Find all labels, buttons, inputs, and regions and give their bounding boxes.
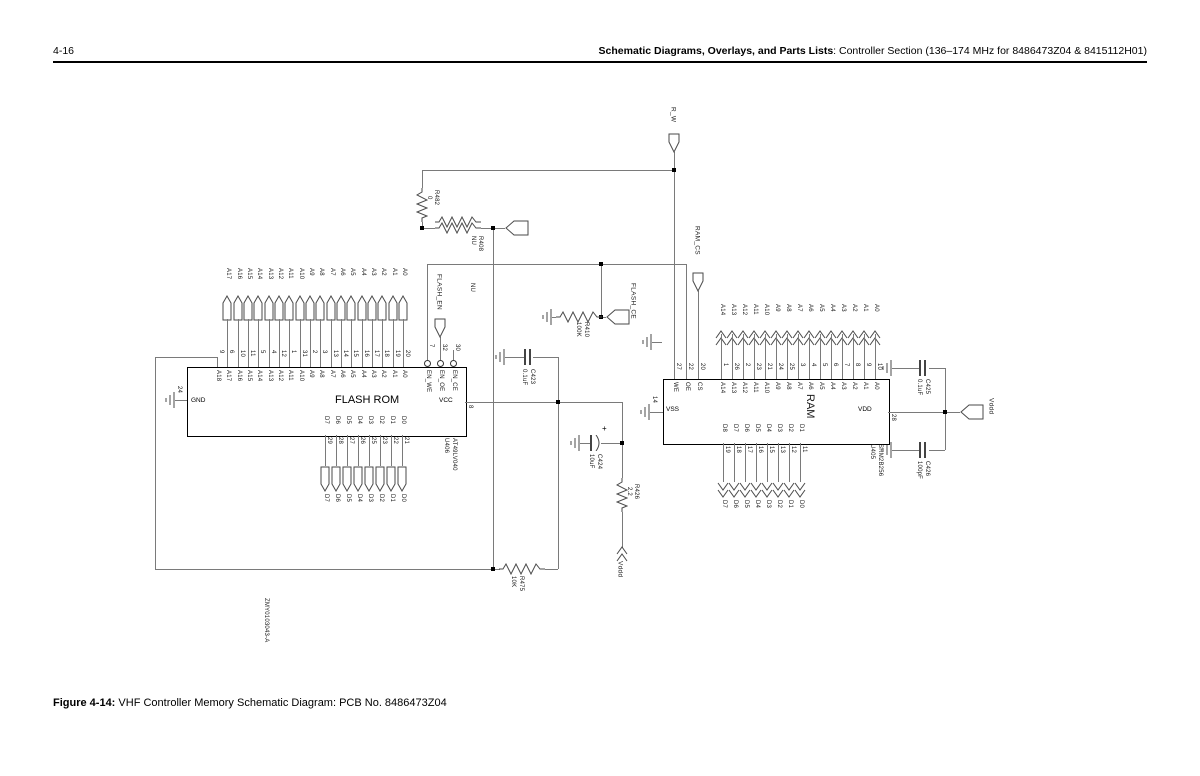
flash-pin-number: 2 (311, 350, 317, 354)
ram-pin-number: 8 (854, 363, 860, 367)
wire-v (391, 435, 392, 466)
ram-pin-number: 23 (755, 363, 761, 370)
ram-pin-number: 13 (779, 446, 785, 453)
ram-pin-label: A14 (719, 382, 725, 393)
connector-vddd (960, 404, 984, 420)
ram-pin-number: 2 (744, 363, 750, 367)
flash-address-arrow-label: A0 (401, 268, 407, 276)
ram-data-arrow-label: D7 (721, 500, 727, 508)
wire-v (238, 319, 239, 367)
flash-address-arrow-label: A5 (349, 268, 355, 276)
address-input-arrow (233, 295, 243, 321)
junction-dot (599, 262, 603, 266)
ram-pin-label: WE (672, 382, 678, 392)
data-bus-arrow (353, 466, 363, 492)
wire-h (929, 368, 945, 369)
junction-dot (420, 226, 424, 230)
capacitor-c426 (924, 442, 926, 458)
wire-h (580, 443, 590, 444)
wire-v (248, 319, 249, 367)
flash-pin-label: D1 (389, 416, 395, 424)
flash-pin-number: 14 (342, 350, 348, 357)
ram-data-arrow-label: D6 (732, 500, 738, 508)
wire-v (341, 319, 342, 367)
wire-v (351, 319, 352, 367)
manual-page: 4-16 Schematic Diagrams, Overlays, and P… (0, 0, 1200, 776)
ram-pin-label: A8 (785, 382, 791, 390)
wire-v (422, 170, 423, 188)
ram-address-arrow-label: A3 (840, 304, 846, 312)
address-input-arrow (305, 295, 315, 321)
wire-v (767, 443, 768, 482)
wire-v (798, 334, 799, 379)
capacitor-c426 (919, 442, 921, 458)
wire-v (622, 512, 623, 548)
ram-address-arrow-label: A7 (796, 304, 802, 312)
wire-v (723, 443, 724, 482)
ram-pin-label: A3 (840, 382, 846, 390)
ram-data-arrow-label: D1 (787, 500, 793, 508)
address-input-arrow (346, 295, 356, 321)
flash-pin-number: 1 (290, 350, 296, 354)
flash-data-arrow-label: D6 (334, 494, 340, 502)
address-input-arrow (264, 295, 274, 321)
flash-pin-number: 13 (332, 350, 338, 357)
ram-address-arrow-label: A10 (763, 304, 769, 315)
flash-pin-number: 29 (326, 437, 332, 444)
address-input-arrow (398, 295, 408, 321)
junction-dot (491, 226, 495, 230)
ram-pin-number: 20 (699, 363, 705, 370)
flash-pin-label: A0 (401, 370, 407, 378)
ground-symbol (640, 333, 652, 351)
flash-pin-number: 25 (370, 437, 376, 444)
wire-v (440, 337, 441, 360)
flash-data-arrow-label: D0 (400, 494, 406, 502)
schematic-canvas: A189A176A17A1610A16A1511A15A145A14A134A1… (0, 0, 1200, 776)
ram-pin-number: 6 (832, 363, 838, 367)
ram-pin-number: 26 (733, 363, 739, 370)
address-input-arrow (243, 295, 253, 321)
flash-pin-label: A3 (370, 370, 376, 378)
flash-pin-number: 5 (259, 350, 265, 354)
ground-c424 (568, 434, 580, 452)
ram-pin-label: A10 (763, 382, 769, 393)
wire-v (945, 368, 946, 450)
wire-v (320, 319, 321, 367)
ram-address-arrow-label: A9 (774, 304, 780, 312)
wire-h (533, 357, 558, 358)
flash-pin-label: A14 (256, 370, 262, 381)
ground-c423 (493, 348, 505, 366)
ram-pin-label: D8 (721, 424, 727, 432)
flash-address-arrow-label: A15 (246, 268, 252, 279)
flash-address-arrow-label: A14 (256, 268, 262, 279)
ram-data-arrow-label: D0 (798, 500, 804, 508)
flash-pin-label: A9 (308, 370, 314, 378)
ram-pin-label: A6 (807, 382, 813, 390)
flash-data-arrow-label: D7 (323, 494, 329, 502)
ram-data-arrow-label: D2 (776, 500, 782, 508)
wire-v (558, 357, 559, 569)
wire-v (853, 334, 854, 379)
wire-v (721, 334, 722, 379)
wire-v (698, 291, 699, 379)
ram-address-arrow-label: A14 (719, 304, 725, 315)
flash-address-arrow-label: A2 (380, 268, 386, 276)
flash-pin-label: A7 (329, 370, 335, 378)
wire-v (453, 350, 454, 360)
flash-address-arrow-label: A6 (339, 268, 345, 276)
connector-r-w (668, 133, 680, 153)
wire-h (155, 569, 500, 570)
ram-pin-number: 16 (757, 446, 763, 453)
address-input-arrow (253, 295, 263, 321)
junction-dot (620, 441, 624, 445)
wire-v (310, 319, 311, 367)
flash-pin-label: A2 (380, 370, 386, 378)
flash-ctrl-pin-number: 32 (441, 344, 447, 351)
flash-pin-number: 3 (321, 350, 327, 354)
flash-address-arrow-label: A10 (298, 268, 304, 279)
ram-pin-number: 24 (777, 363, 783, 370)
address-input-arrow (274, 295, 284, 321)
wire-v (300, 319, 301, 367)
flash-pin-label: A5 (349, 370, 355, 378)
wire-v (380, 435, 381, 466)
capacitor-c424-curved-plate (594, 435, 604, 451)
flash-pin-number: 21 (403, 437, 409, 444)
data-bus-arrow (386, 466, 396, 492)
junction-dot (491, 567, 495, 571)
ram-pin-number: 17 (746, 446, 752, 453)
wire-v (493, 228, 494, 569)
flash-pin-label: D6 (334, 416, 340, 424)
ram-data-arrow-label: D5 (743, 500, 749, 508)
junction-dot (556, 400, 560, 404)
wire-v (734, 443, 735, 482)
wire-v (864, 334, 865, 379)
flash-address-arrow-label: A4 (360, 268, 366, 276)
flash-pin-label: D7 (323, 416, 329, 424)
wire-v (787, 334, 788, 379)
flash-address-arrow-label: A8 (318, 268, 324, 276)
active-low-bubble (450, 360, 457, 367)
wire-v (382, 319, 383, 367)
ram-address-arrow-label: A13 (730, 304, 736, 315)
flash-pin-label: A16 (236, 370, 242, 381)
ram-address-arrow-label: A0 (873, 304, 879, 312)
flash-address-arrow-label: A12 (277, 268, 283, 279)
wire-v (820, 334, 821, 379)
ram-pin-label: A1 (862, 382, 868, 390)
flash-ctrl-pin-label: EN_CE (451, 370, 457, 391)
wire-v (369, 435, 370, 466)
flash-pin-number: 26 (359, 437, 365, 444)
data-bus-arrow (375, 466, 385, 492)
flash-pin-number: 4 (270, 350, 276, 354)
wire-v (289, 319, 290, 367)
wire-h (650, 412, 663, 413)
wire-v (743, 334, 744, 379)
ram-pin-number: 21 (766, 363, 772, 370)
wire-h (888, 412, 960, 413)
flash-pin-number: 17 (373, 350, 379, 357)
wire-v (347, 435, 348, 466)
wire-v (336, 435, 337, 466)
ram-pin-label: A7 (796, 382, 802, 390)
wire-v (778, 443, 779, 482)
ram-pin-label: CS (696, 382, 702, 391)
address-input-arrow (284, 295, 294, 321)
wire-v (875, 334, 876, 379)
flash-address-arrow-label: A7 (329, 268, 335, 276)
capacitor-c423 (524, 349, 526, 365)
wire-v (227, 319, 228, 367)
flash-address-arrow-label: A17 (225, 268, 231, 279)
ram-pin-label: A0 (873, 382, 879, 390)
wire-v (258, 319, 259, 367)
ram-pin-label: D3 (776, 424, 782, 432)
ground-r410 (540, 308, 552, 326)
flash-pin-number: 15 (352, 350, 358, 357)
capacitor-c425 (919, 360, 921, 376)
active-low-bubble (424, 360, 431, 367)
flash-pin-label: A18 (215, 370, 221, 381)
wire-v (358, 435, 359, 466)
resistor-r482 (416, 188, 428, 222)
wire-v (331, 319, 332, 367)
ram-pin-label: D5 (754, 424, 760, 432)
flash-pin-label: A1 (391, 370, 397, 378)
flash-data-arrow-label: D2 (378, 494, 384, 502)
ram-pin-label: OE (684, 382, 690, 391)
flash-pin-label: D3 (367, 416, 373, 424)
wire-v (622, 443, 623, 478)
ram-pin-label: D4 (765, 424, 771, 432)
flash-pin-label: A6 (339, 370, 345, 378)
wire-h (929, 450, 945, 451)
wire-h (175, 400, 187, 401)
flash-pin-label: A13 (267, 370, 273, 381)
flash-pin-number: 16 (363, 350, 369, 357)
wire-v (765, 334, 766, 379)
ram-pin-label: D1 (798, 424, 804, 432)
ram-address-arrow-label: A4 (829, 304, 835, 312)
ram-pin-label: A9 (774, 382, 780, 390)
ram-data-arrow-label: D4 (754, 500, 760, 508)
connector-flash-ce (606, 309, 630, 325)
ram-pin-number: 9 (865, 363, 871, 367)
ram-pin-number: 19 (724, 446, 730, 453)
address-input-arrow (315, 295, 325, 321)
flash-data-arrow-label: D5 (345, 494, 351, 502)
flash-pin-label: A17 (225, 370, 231, 381)
wire-v (686, 264, 687, 379)
flash-ctrl-pin-label: EN_OE (438, 370, 444, 391)
wire-h (427, 264, 686, 265)
flash-pin-number: 11 (249, 350, 255, 357)
wire-v (809, 334, 810, 379)
address-input-arrow (222, 295, 232, 321)
ram-address-arrow-label: A5 (818, 304, 824, 312)
flash-data-arrow-label: D1 (389, 494, 395, 502)
address-input-arrow (388, 295, 398, 321)
wire-v (754, 334, 755, 379)
flash-pin-number: 20 (404, 350, 410, 357)
resistor-r410 (556, 311, 602, 323)
flash-pin-number: 27 (348, 437, 354, 444)
flash-pin-number: 31 (301, 350, 307, 357)
capacitor-c425 (924, 360, 926, 376)
address-input-arrow (367, 295, 377, 321)
flash-pin-label: A15 (246, 370, 252, 381)
ram-pin-number: 7 (843, 363, 849, 367)
flash-pin-label: A10 (298, 370, 304, 381)
ram-pin-number: 18 (735, 446, 741, 453)
ram-data-arrow-label: D3 (765, 500, 771, 508)
ram-pin-number: 12 (790, 446, 796, 453)
ram-pin-number: 22 (687, 363, 693, 370)
flash-pin-label: A11 (287, 370, 293, 381)
flash-pin-number: 6 (228, 350, 234, 354)
connector-ram-cs (692, 272, 704, 292)
ram-pin-number: 27 (675, 363, 681, 370)
resistor-r475 (499, 563, 545, 575)
address-input-arrow (377, 295, 387, 321)
wire-v (674, 170, 675, 379)
ram-pin-label: A13 (730, 382, 736, 393)
data-bus-arrow (364, 466, 374, 492)
flash-pin-label: A12 (277, 370, 283, 381)
flash-address-arrow-label: A16 (236, 268, 242, 279)
data-bus-arrow (342, 466, 352, 492)
off-page-connector (505, 220, 529, 236)
ram-pin-number: 1 (722, 363, 728, 367)
address-input-arrow (326, 295, 336, 321)
wire-h (465, 402, 622, 403)
ram-pin-label: A4 (829, 382, 835, 390)
wire-h (505, 357, 524, 358)
ram-address-arrow-label: A11 (752, 304, 758, 315)
flash-pin-label: A8 (318, 370, 324, 378)
flash-pin-label: D2 (378, 416, 384, 424)
wire-v (842, 334, 843, 379)
wire-h (545, 569, 558, 570)
ram-pin-label: A5 (818, 382, 824, 390)
ram-pin-label: D7 (732, 424, 738, 432)
flash-ctrl-pin-label: EN_WE (425, 370, 431, 392)
flash-pin-number: 9 (218, 350, 224, 354)
wire-v (372, 319, 373, 367)
resistor-r426 (616, 478, 628, 512)
flash-pin-number: 22 (392, 437, 398, 444)
ground-c425 (880, 359, 892, 377)
wire-v (601, 264, 602, 317)
resistor-r408 (435, 222, 481, 234)
active-low-bubble (437, 360, 444, 367)
flash-pin-label: D0 (400, 416, 406, 424)
flash-pin-label: D4 (356, 416, 362, 424)
address-input-arrow (336, 295, 346, 321)
connector-flash-en (434, 318, 446, 338)
ram-address-arrow-label: A12 (741, 304, 747, 315)
wire-v (403, 319, 404, 367)
wire-v (362, 319, 363, 367)
wire-h (601, 443, 622, 444)
wire-v (732, 334, 733, 379)
wire-h (892, 368, 919, 369)
ram-address-arrow-label: A8 (785, 304, 791, 312)
wire-v (622, 402, 623, 443)
wire-v (789, 443, 790, 482)
flash-ctrl-pin-number: 30 (454, 344, 460, 351)
data-bus-arrow (397, 466, 407, 492)
bus-chevron-down (794, 482, 806, 498)
flash-address-arrow-label: A9 (308, 268, 314, 276)
ram-pin-label: A12 (741, 382, 747, 393)
flash-pin-label: D5 (345, 416, 351, 424)
wire-h (652, 342, 662, 343)
ram-pin-number: 25 (788, 363, 794, 370)
ground-ram-vss (638, 403, 650, 421)
ram-pin-number: 5 (821, 363, 827, 367)
wire-v (800, 443, 801, 482)
ram-pin-number: 3 (799, 363, 805, 367)
flash-data-arrow-label: D4 (356, 494, 362, 502)
flash-address-arrow-label: A13 (267, 268, 273, 279)
flash-address-arrow-label: A1 (391, 268, 397, 276)
wire-v (776, 334, 777, 379)
flash-pin-number: 28 (337, 437, 343, 444)
ground-flash-gnd (163, 391, 175, 409)
ram-address-arrow-label: A2 (851, 304, 857, 312)
wire-v (325, 435, 326, 466)
flash-pin-number: 19 (394, 350, 400, 357)
ram-pin-label: A11 (752, 382, 758, 393)
wire-v (745, 443, 746, 482)
flash-address-arrow-label: A3 (370, 268, 376, 276)
flash-pin-label: A4 (360, 370, 366, 378)
wire-v (269, 319, 270, 367)
flash-pin-number: 12 (280, 350, 286, 357)
wire-h (155, 357, 217, 358)
data-bus-arrow (320, 466, 330, 492)
wire-h (422, 170, 674, 171)
capacitor-c423 (529, 349, 531, 365)
flash-pin-number: 18 (383, 350, 389, 357)
flash-pin-number: 23 (381, 437, 387, 444)
connector-vddd-flash (616, 546, 628, 562)
ground-c426 (880, 441, 892, 459)
flash-ctrl-pin-number: 7 (428, 344, 434, 348)
address-input-arrow (295, 295, 305, 321)
ram-pin-number: 4 (810, 363, 816, 367)
capacitor-c424 (590, 435, 592, 451)
flash-data-arrow-label: D3 (367, 494, 373, 502)
ram-pin-number: 11 (801, 446, 807, 453)
wire-v (831, 334, 832, 379)
flash-pin-number: 10 (239, 350, 245, 357)
ram-pin-label: D6 (743, 424, 749, 432)
ram-address-arrow-label: A1 (862, 304, 868, 312)
ram-pin-number: 15 (768, 446, 774, 453)
data-bus-arrow (331, 466, 341, 492)
junction-dot (943, 410, 947, 414)
ram-pin-label: D2 (787, 424, 793, 432)
flash-address-arrow-label: A11 (287, 268, 293, 279)
wire-v (756, 443, 757, 482)
